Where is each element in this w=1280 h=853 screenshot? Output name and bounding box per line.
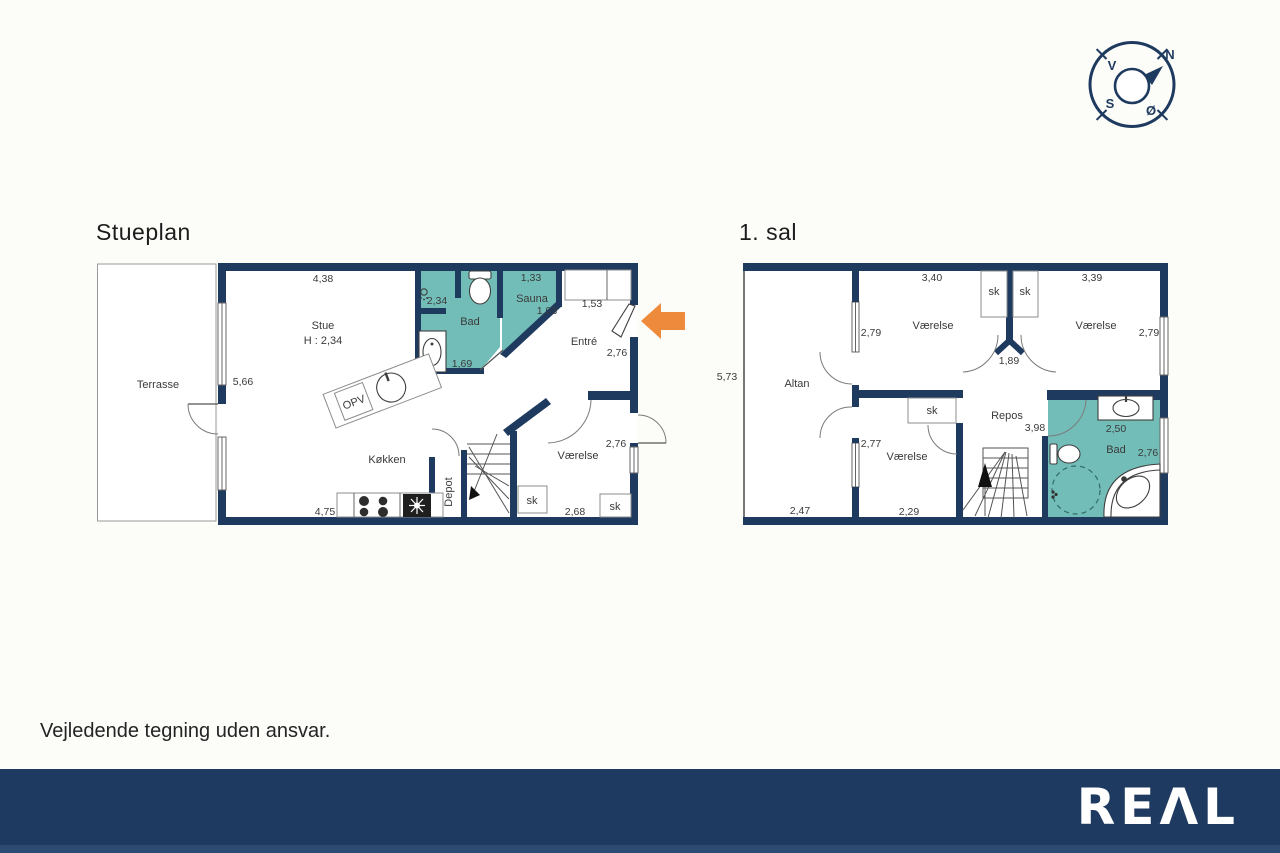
compass: N V S Ø: [1088, 38, 1188, 138]
closet-label-sk: sk: [610, 501, 622, 513]
disclaimer-text: Vejledende tegning uden ansvar.: [40, 720, 330, 743]
dim-sw-depth: 2,77: [861, 438, 882, 450]
first-floor-plan: Altan Værelse Værelse Værelse Repos Bad …: [715, 250, 1185, 540]
ground-floor-title: Stueplan: [96, 219, 191, 246]
compass-rose-icon: [1090, 43, 1174, 127]
sink-icon: [1098, 396, 1153, 420]
dim-stue-width: 4,38: [313, 273, 334, 285]
closet-label-sk: sk: [989, 286, 1001, 298]
entrance-arrow-icon: [641, 303, 685, 339]
room-label-bad: Bad: [1106, 444, 1126, 456]
dim-sauna-depth: 1,03: [537, 305, 558, 317]
room-height-stue: H : 2,34: [304, 335, 343, 347]
dim-terrasse-depth: 5,66: [233, 376, 254, 388]
dim-nw-depth: 2,79: [861, 327, 882, 339]
dim-vaerelse-depth: 2,76: [606, 438, 627, 450]
compass-west: V: [1108, 58, 1117, 73]
closet-label-sk: sk: [1020, 286, 1032, 298]
room-label-vaerelse-nw: Værelse: [913, 320, 954, 332]
room-label-altan: Altan: [784, 378, 809, 390]
room-label-bad: Bad: [460, 316, 480, 328]
dim-bad-width: 2,50: [1106, 423, 1127, 435]
closet-label-sk: sk: [527, 495, 539, 507]
room-label-entre: Entré: [571, 336, 597, 348]
dim-koekken-width: 4,75: [315, 506, 336, 518]
ground-floor-plan: OPV: [85, 250, 685, 540]
dim-altan-width: 2,47: [790, 505, 811, 517]
room-label-terrasse: Terrasse: [137, 379, 179, 391]
compass-north: N: [1165, 47, 1174, 62]
dim-nw-width: 3,40: [922, 272, 943, 284]
dim-bad-width: 2,34: [427, 295, 448, 307]
footer-strip: [0, 845, 1280, 853]
dim-ne-depth: 2,79: [1139, 327, 1160, 339]
toilet-icon: [469, 271, 491, 304]
compass-south: S: [1106, 96, 1115, 111]
room-label-repos: Repos: [991, 410, 1023, 422]
room-label-koekken: Køkken: [368, 454, 405, 466]
entre-closet: [565, 270, 631, 300]
dim-sw-width: 2,29: [899, 506, 920, 518]
room-label-depot: Depot: [443, 477, 455, 506]
real-logo: REΛL: [1077, 777, 1240, 837]
room-label-stue: Stue: [312, 320, 335, 332]
dim-floor-depth: 5,73: [717, 371, 738, 383]
room-label-vaerelse: Værelse: [558, 450, 599, 462]
dim-ne-width: 3,39: [1082, 272, 1103, 284]
extractor-fan-icon: [403, 494, 431, 517]
room-label-sauna: Sauna: [516, 293, 549, 305]
dim-door-gap: 1,89: [999, 355, 1020, 367]
footer-band: REΛL: [0, 769, 1280, 845]
terrace-outline: [98, 264, 217, 521]
closet-label-sk: sk: [927, 405, 939, 417]
dim-bad-length: 1,69: [452, 358, 473, 370]
compass-east: Ø: [1146, 103, 1156, 118]
first-floor-title: 1. sal: [739, 219, 797, 246]
kitchen-appliances: [337, 493, 443, 517]
room-label-vaerelse-sw: Værelse: [887, 451, 928, 463]
room-label-vaerelse-ne: Værelse: [1076, 320, 1117, 332]
dim-bad-depth: 2,76: [1138, 447, 1159, 459]
dim-repos-length: 3,98: [1025, 422, 1046, 434]
dim-sauna-width: 1,33: [521, 272, 542, 284]
dim-vaerelse-width: 2,68: [565, 506, 586, 518]
dim-entre-width: 1,53: [582, 298, 603, 310]
toilet-icon: [1050, 444, 1080, 464]
dim-entre-depth: 2,76: [607, 347, 628, 359]
